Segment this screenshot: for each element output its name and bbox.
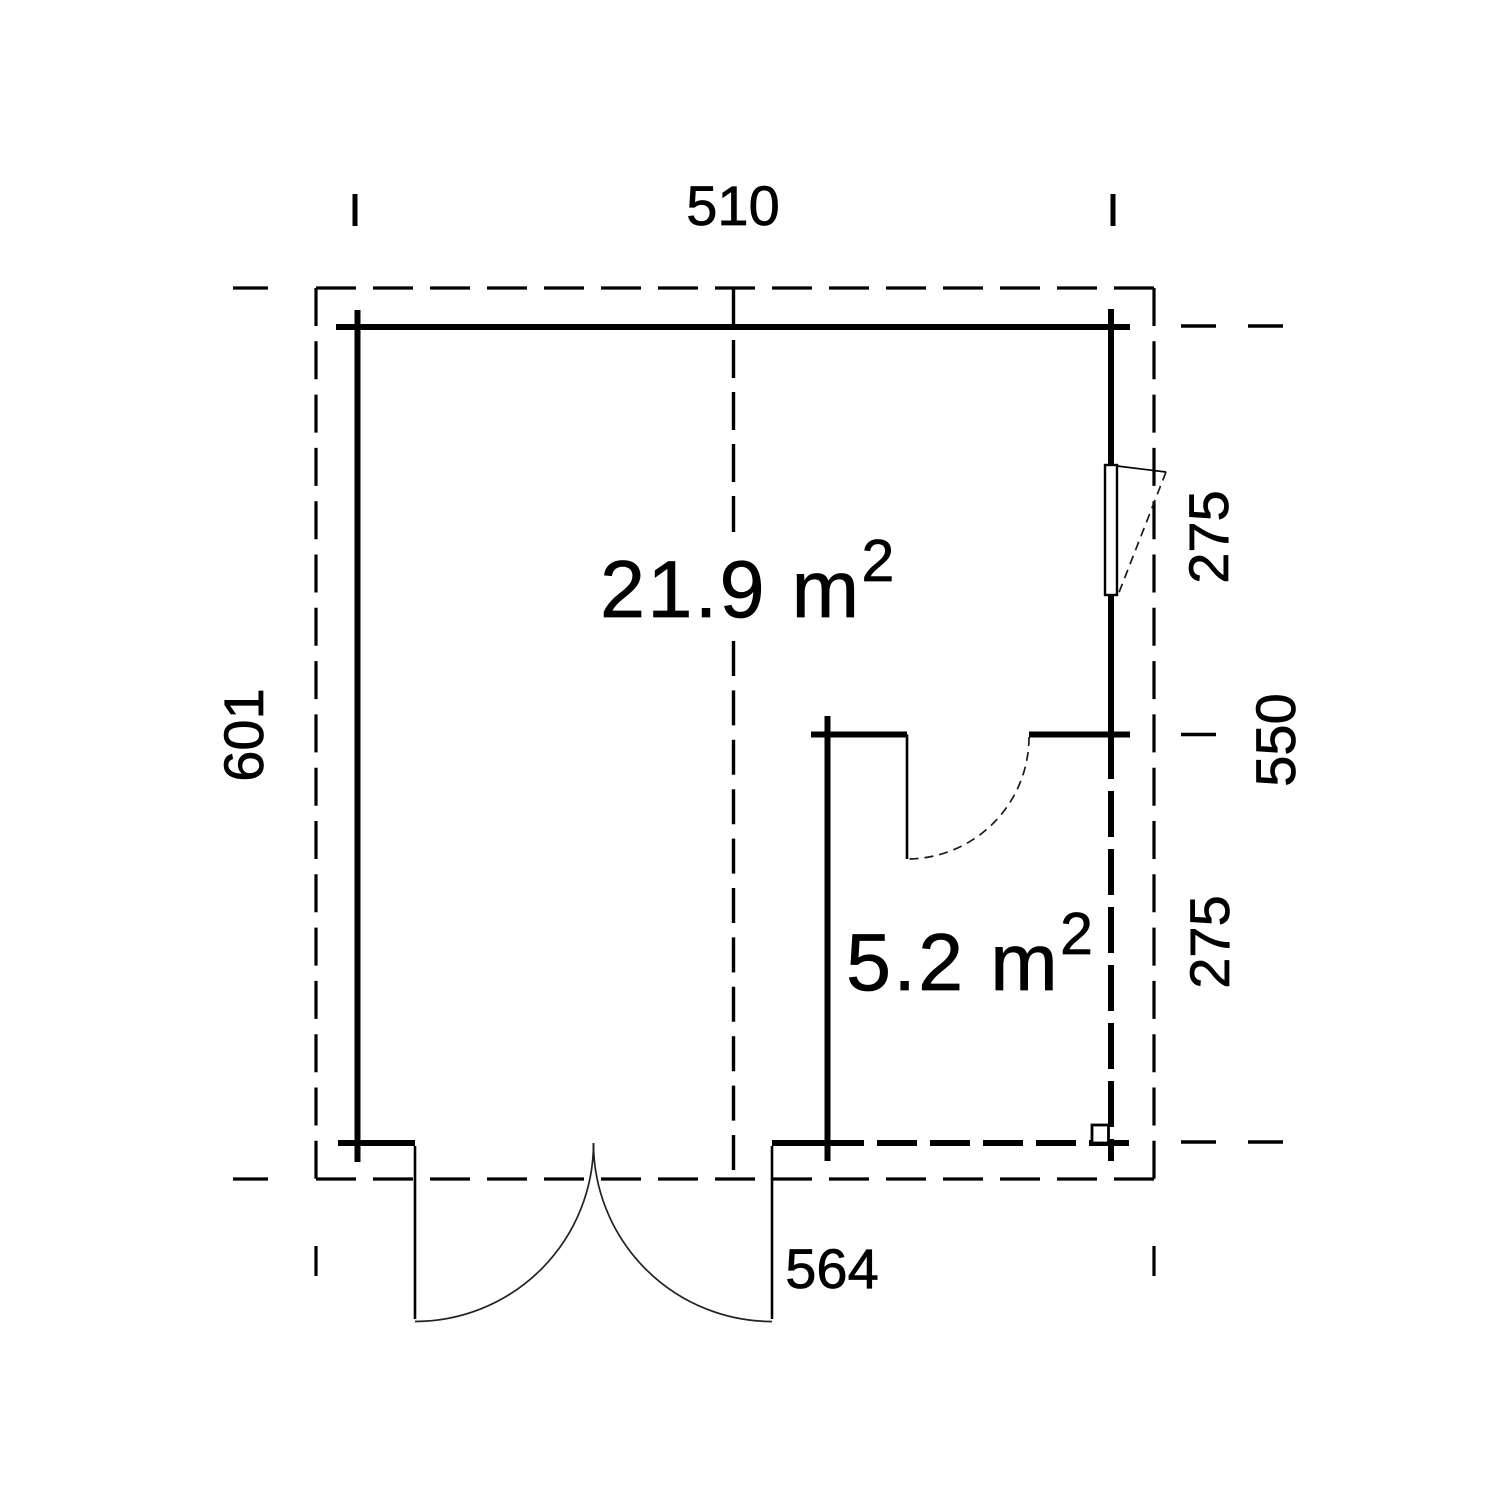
svg-text:601: 601: [212, 688, 275, 781]
svg-text:275: 275: [1178, 895, 1241, 988]
svg-text:510: 510: [686, 174, 779, 237]
svg-text:564: 564: [785, 1237, 878, 1300]
svg-text:5.2 m2: 5.2 m2: [846, 901, 1095, 1008]
svg-text:21.9 m2: 21.9 m2: [600, 528, 897, 635]
svg-text:275: 275: [1177, 490, 1240, 583]
svg-text:550: 550: [1244, 693, 1307, 786]
